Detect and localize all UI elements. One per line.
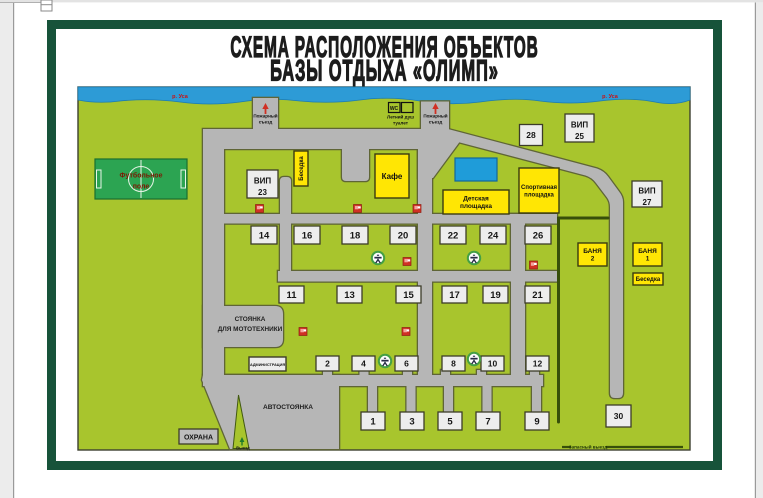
svg-text:28: 28 — [526, 130, 536, 140]
svg-text:16: 16 — [302, 230, 313, 241]
svg-text:7: 7 — [485, 416, 490, 427]
svg-text:6: 6 — [404, 359, 409, 369]
svg-text:р. Уса: р. Уса — [172, 94, 189, 100]
svg-text:туалет: туалет — [393, 121, 409, 126]
svg-text:15: 15 — [403, 290, 414, 301]
svg-text:АДМИНИСТРАЦИЯ: АДМИНИСТРАЦИЯ — [250, 363, 285, 367]
svg-text:2: 2 — [325, 359, 330, 369]
svg-text:Детскаяплощадка: Детскаяплощадка — [460, 195, 492, 210]
svg-text:13: 13 — [344, 290, 355, 301]
svg-text:30: 30 — [614, 411, 624, 421]
svg-text:1: 1 — [370, 416, 376, 427]
svg-text:р. Уса: р. Уса — [602, 94, 619, 100]
svg-text:ДЛЯ МОТОТЕХНИКИ: ДЛЯ МОТОТЕХНИКИ — [218, 326, 283, 333]
svg-text:Спортивнаяплощадка: Спортивнаяплощадка — [521, 185, 557, 198]
svg-text:Выезд: Выезд — [236, 446, 250, 451]
svg-text:18: 18 — [350, 230, 361, 241]
svg-text:съезд: съезд — [259, 120, 273, 125]
svg-text:3: 3 — [409, 416, 414, 427]
svg-text:Кафе: Кафе — [382, 172, 403, 181]
svg-text:20: 20 — [398, 230, 409, 241]
svg-text:11: 11 — [286, 290, 297, 301]
svg-text:Беседка: Беседка — [636, 277, 661, 283]
svg-text:съезд: съезд — [429, 120, 443, 125]
svg-text:8: 8 — [451, 359, 456, 369]
svg-text:Футбольное: Футбольное — [120, 172, 163, 180]
svg-text:14: 14 — [259, 230, 270, 241]
svg-text:19: 19 — [490, 290, 501, 301]
svg-text:WC: WC — [390, 106, 399, 112]
svg-text:Запасный выезд: Запасный выезд — [569, 444, 608, 450]
svg-text:24: 24 — [488, 230, 499, 241]
svg-text:21: 21 — [532, 290, 543, 301]
svg-text:10: 10 — [488, 359, 498, 369]
svg-text:5: 5 — [447, 416, 453, 427]
svg-text:Пожарный: Пожарный — [423, 113, 447, 119]
svg-text:4: 4 — [361, 359, 366, 369]
svg-text:БАЗЫ ОТДЫХА «ОЛИМП»: БАЗЫ ОТДЫХА «ОЛИМП» — [270, 54, 499, 87]
svg-text:Пожарный: Пожарный — [253, 113, 277, 119]
svg-text:ОХРАНА: ОХРАНА — [184, 435, 213, 442]
svg-text:СТОЯНКА: СТОЯНКА — [235, 316, 266, 323]
svg-text:9: 9 — [534, 416, 539, 427]
svg-text:Летний душ: Летний душ — [387, 114, 414, 120]
svg-text:17: 17 — [449, 290, 460, 301]
svg-text:поле: поле — [133, 184, 150, 191]
svg-text:26: 26 — [533, 230, 544, 241]
svg-text:22: 22 — [448, 230, 459, 241]
svg-text:АВТОСТОЯНКА: АВТОСТОЯНКА — [263, 404, 313, 411]
svg-text:12: 12 — [533, 359, 543, 369]
svg-text:Беседка: Беседка — [299, 156, 305, 181]
